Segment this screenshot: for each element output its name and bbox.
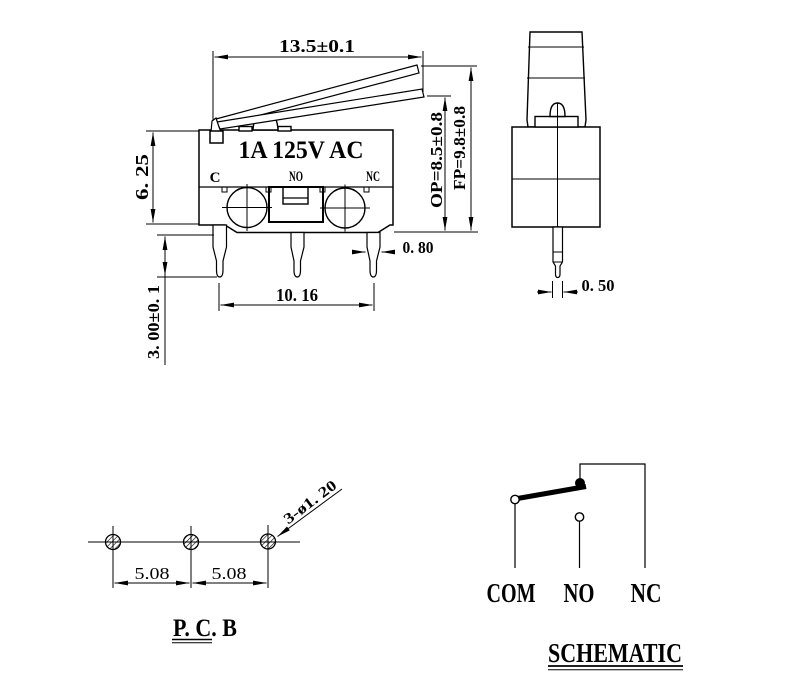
dim-body-height: 6. 25 (132, 131, 199, 224)
pcb-hole-3 (261, 534, 276, 549)
dim-pin-span: 10. 16 (219, 283, 374, 311)
nc-contact-dot (575, 478, 585, 488)
dim-text-pin-span: 10. 16 (276, 285, 318, 305)
dim-pin-width: 0. 80 (352, 238, 434, 257)
dim-pin-length: 3. 00±0. 1 (144, 235, 217, 365)
dim-text-fp: FP=9.8±0.8 (450, 106, 469, 190)
com-contact (511, 495, 519, 503)
pcb-hole-2 (184, 535, 199, 550)
terminal-label-nc: NC (366, 169, 380, 185)
terminal-label-no: NO (289, 169, 303, 185)
schematic-title: SCHEMATIC (548, 638, 682, 668)
dim-text-op: OP=8.5±0.8 (427, 112, 446, 208)
plunger-base-side (535, 117, 578, 128)
micro-switch-drawing: 1A 125V AC C NO NC 13.5±0.1 6. 25 3. 00±… (0, 0, 800, 685)
pcb-title: P. C. B (173, 615, 237, 642)
dome-tab-right (278, 127, 291, 132)
body-marking-text: 1A 125V AC (239, 137, 364, 164)
terminal-pin-no (291, 233, 304, 278)
switch-body-side (512, 127, 600, 227)
schematic-label-com: COM (487, 578, 536, 608)
switch-blade (518, 487, 587, 499)
nc-wire (580, 464, 645, 568)
terminal-label-c: C (210, 170, 221, 186)
dim-text-pitch-right: 5.08 (212, 564, 247, 583)
dim-text-body-height: 6. 25 (132, 154, 152, 200)
dome-tab-left (239, 127, 252, 132)
pcb-hole-1 (106, 535, 121, 550)
front-view: 1A 125V AC C NO NC 13.5±0.1 6. 25 3. 00±… (132, 36, 478, 365)
schematic-label-nc: NC (631, 578, 662, 608)
side-view: 0. 50 (512, 32, 615, 298)
dim-text-lever-width: 13.5±0.1 (279, 36, 355, 56)
terminal-pin-com (213, 225, 227, 277)
no-contact (575, 513, 583, 521)
hole-callout: 3-ø1. 20 (278, 478, 343, 537)
technical-drawing-page: 1A 125V AC C NO NC 13.5±0.1 6. 25 3. 00±… (0, 0, 800, 685)
dim-text-pitch-left: 5.08 (135, 564, 170, 583)
hole-callout-text: 3-ø1. 20 (281, 478, 340, 528)
lever-pivot-clip (210, 131, 223, 143)
schematic-label-no: NO (564, 578, 595, 608)
pcb-view: 5.08 5.08 3-ø1. 20 P. C. B (88, 478, 342, 643)
schematic-view: COM NO NC SCHEMATIC (487, 464, 684, 670)
dim-text-pin-width: 0. 80 (403, 238, 434, 257)
dim-pin-thickness: 0. 50 (537, 276, 615, 298)
dim-text-pin-thickness: 0. 50 (582, 276, 615, 295)
terminal-pin-nc (367, 233, 380, 278)
dim-text-pin-length: 3. 00±0. 1 (144, 285, 163, 359)
